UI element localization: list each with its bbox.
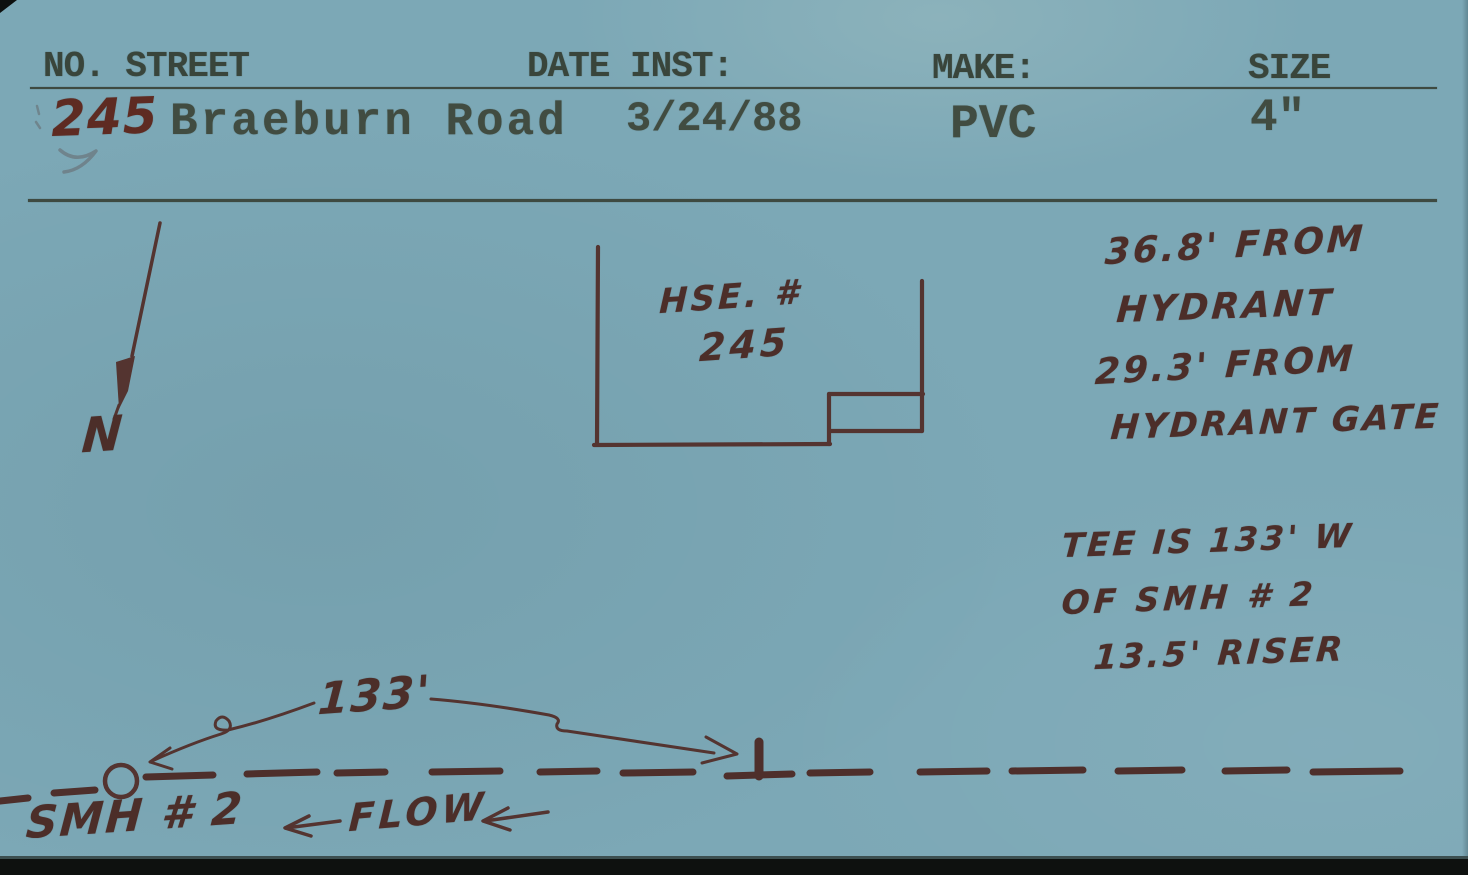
scan-edge-right <box>1462 0 1468 875</box>
record-card: NO. STREET DATE INST: MAKE: SIZE 245 Bra… <box>0 0 1468 875</box>
flow-arrow-right-icon <box>483 808 548 830</box>
distance-label: 133' <box>316 666 433 725</box>
header-underline <box>30 87 1437 89</box>
house-number-label: 245 <box>698 320 791 371</box>
field-label-make: MAKE: <box>932 48 1035 89</box>
field-value-date-inst: 3/24/88 <box>626 95 802 143</box>
field-label-size: SIZE <box>1248 48 1330 89</box>
field-value-make: PVC <box>950 98 1036 152</box>
distance-leader-icon <box>150 699 737 769</box>
north-label: N <box>80 405 124 464</box>
flow-arrow-left-icon <box>285 816 340 836</box>
field-label-date-inst: DATE INST: <box>527 46 733 87</box>
field-value-house-number: 245 <box>50 86 159 148</box>
note-hydrant-line-2: HYDRANT <box>1115 282 1335 331</box>
section-divider <box>28 199 1437 202</box>
scan-edge-bottom <box>0 856 1468 875</box>
field-value-street: Braeburn Road <box>170 96 568 148</box>
field-value-size: 4" <box>1250 92 1305 144</box>
corner-mark-top-left <box>0 0 17 13</box>
field-label-no-street: NO. STREET <box>43 46 249 87</box>
north-arrow-icon <box>114 223 160 419</box>
